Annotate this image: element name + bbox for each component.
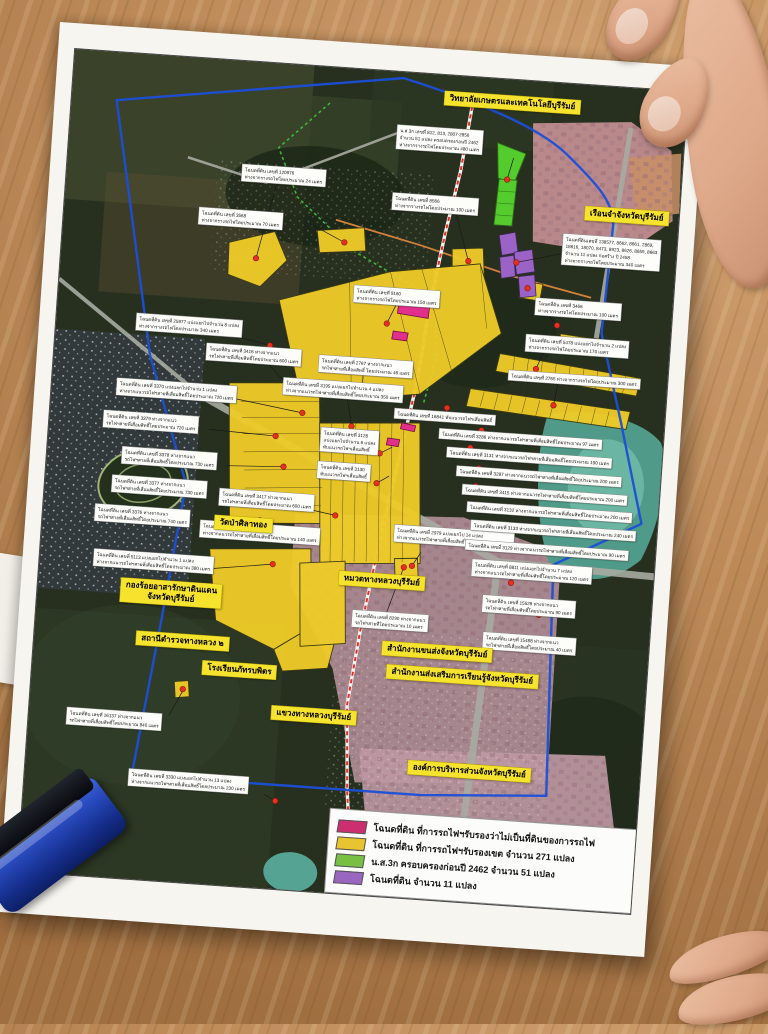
parcel-label: โฉนดที่ดิน เลขที่ 3568ห่างจากรางรถไฟโดยป… — [198, 207, 283, 230]
parcel-label: โฉนดที่ดิน เลขที่ 3416 ห่างจากแนวรถไฟฯสา… — [206, 343, 302, 367]
place-name-label: หมวดทางหลวงบุรีรัมย์ — [338, 571, 425, 591]
place-name-label: องค์การบริหารส่วนจังหวัดบุรีรัมย์ — [407, 760, 531, 783]
parcel-label: โฉนดที่ดิน เลขที่ 8290 ห่างจากแนวรถไฟฯสา… — [352, 610, 429, 632]
hand-bottom-right — [658, 934, 768, 1024]
place-name-label: สำนักงานขนส่งจังหวัดบุรีรัมย์ — [382, 641, 493, 663]
parcel-label: โฉนดที่ดิน เลขที่ 3195 แบ่งแยกไปจำนวน 4 … — [283, 377, 404, 403]
legend-color-swatch — [334, 853, 365, 868]
parcel-label: โฉนดที่ดิน เลขที่ 3132 ห่างจากแนวรถไฟฯสา… — [467, 502, 633, 524]
legend-color-swatch — [335, 836, 366, 851]
parcel-label: โฉนดที่ดิน เลขที่ 5113 แบ่งแยกไปจำนวน 1 … — [93, 549, 214, 575]
parcel-label: โฉนดที่ดิน เลขที่ 3128แบ่งแยกไปจำนวน 6 แ… — [320, 427, 380, 455]
parcel-label: โฉนดที่ดิน เลขที่ 16137 ห่างจากแนวรถไฟฯส… — [66, 707, 162, 731]
parcel-label: โฉนดที่ดิน เลขที่ 15528 ห่างจากแนวรถไฟฯส… — [482, 595, 576, 619]
parcel-label: โฉนดที่ดิน เลขที่ 2767 ห่างจากแนวรถไฟฯสา… — [318, 355, 413, 379]
parcel-label: โฉนดที่ดิน เลขที่ 3129 ห่างจากแนวรถไฟฯสา… — [465, 540, 628, 561]
parcel-label: โฉนดที่ดิน เลขที่ 2765 ห่างจากรางรถไฟโดย… — [508, 370, 640, 389]
parcel-label: โฉนดที่ดิน เลขที่ 3370 แบ่งแยกไปจำนวน 1 … — [116, 378, 237, 404]
place-name-label: โรงเรียนภัทรบพิตร — [202, 661, 277, 680]
parcel-label: โฉนดที่ดิน เลขที่ 9160ห่างจากรางรถไฟโดยป… — [353, 285, 440, 308]
parcel-label: น.ส.3ก เลขที่ 812, 813, 2807-2856จำนวน 5… — [396, 125, 484, 155]
place-name-label: แขวงทางหลวงบุรีรัมย์ — [271, 705, 357, 725]
parcel-label: โฉนดที่ดิน เลขที่ 3287 ห่างจากแนวรถไฟฯสา… — [456, 466, 622, 488]
place-name-label: สำนักงานส่งเสริมการเรียนรู้จังหวัดบุรีรั… — [386, 664, 538, 689]
parcel-label: โฉนดที่ดิน เลขที่ 8566ห่างจากรางรถไฟโดยป… — [392, 193, 479, 216]
parcel-label: โฉนดที่ดิน เลขที่ 3131 ห่างจากแนวรถไฟฯสา… — [447, 447, 613, 469]
legend-color-swatch — [337, 819, 368, 834]
parcel-label: โฉนดที่ดิน เลขที่ 3376 ห่างจากแนวรถไฟฯสา… — [94, 504, 190, 528]
parcel-label: โฉนดที่ดิน เลขที่ 16841 ทับแนวรถไฟฯเสื่อ… — [394, 408, 495, 425]
parcel-label: โฉนดที่ดิน เลขที่ 3377 ห่างจากแนวรถไฟฯสา… — [111, 475, 207, 499]
parcel-label: โฉนดที่ดิน เลขที่ 3466ห่างจากรางรถไฟโดยป… — [535, 298, 622, 321]
parcel-label: โฉนดที่ดิน เลขที่ 3378 ห่างจากแนวรถไฟฯสา… — [121, 446, 217, 470]
parcel-label: โฉนดที่ดิน เลขที่ 8811 แบ่งแยกไปจำนวน 7 … — [471, 559, 592, 585]
hand-top-right — [628, 0, 768, 300]
place-name-label: กองร้อยอาสารักษาดินแดนจังหวัดบุรีรัมย์ — [120, 578, 223, 609]
parcel-label: โฉนดที่ดิน เลขที่ 3130ทับแนวรถไฟฯเสื่อมส… — [317, 461, 371, 482]
parcel-label: โฉนดที่ดิน เลขที่ 5478 แบ่งแยกไปจำนวน 2 … — [525, 334, 629, 358]
parcel-label: โฉนดที่ดิน เลขที่ 3286 ห่างจากแนวรถไฟฯสา… — [439, 428, 602, 449]
parcel-label: โฉนดที่ดิน เลขที่ 3330 แบ่งแยกไปจำนวน 13… — [128, 769, 249, 795]
legend-color-swatch — [333, 870, 364, 885]
parcel-label: โฉนดที่ดิน เลขที่ 15488 ห่างจากแนวรถไฟฯส… — [482, 632, 576, 656]
parcel-label: โฉนดที่ดิน เลขที่ 3417 ห่างจากแนวรถไฟฯสา… — [219, 488, 315, 512]
labels-layer: โฉนดที่ดิน เลขที่ 120976ห่างจากรางรถไฟโด… — [18, 49, 688, 914]
parcel-label: โฉนดที่ดิน เลขที่ 3379 ห่างจากแนวรถไฟฯสา… — [103, 410, 199, 434]
parcel-label: โฉนดที่ดิน เลขที่ 120976ห่างจากรางรถไฟโด… — [241, 164, 326, 187]
parcel-label: โฉนดที่ดิน เลขที่ 25977 แบ่งแยกไปจำนวน 8… — [136, 313, 243, 338]
map-area: โฉนดที่ดิน เลขที่ 120976ห่างจากรางรถไฟโด… — [18, 49, 688, 914]
place-name-label: สถานีตำรวจทางหลวง ๒ — [136, 631, 229, 651]
place-name-label: วิทยาลัยเกษตรและเทคโนโลยีบุรีรัมย์ — [444, 91, 581, 114]
